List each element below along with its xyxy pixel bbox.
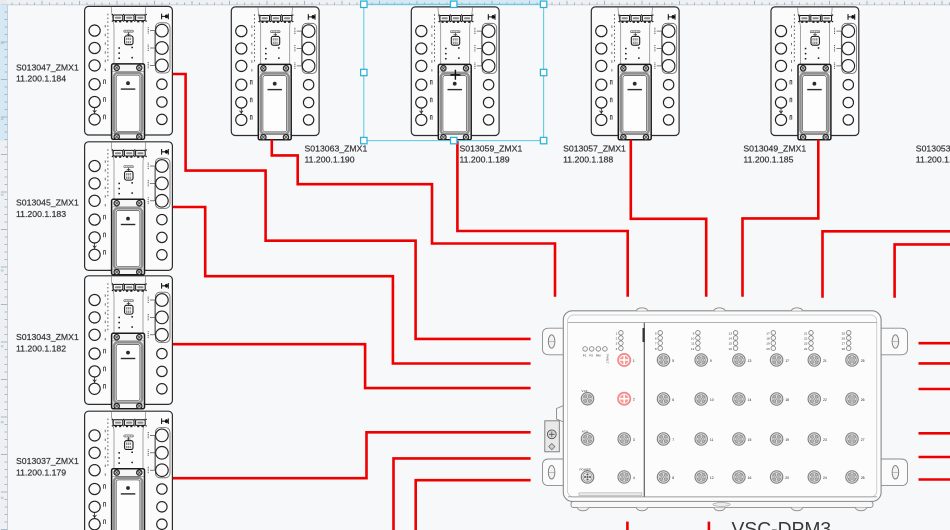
svg-text:18: 18	[766, 336, 770, 340]
svg-text:26: 26	[861, 398, 865, 402]
svg-text:4: 4	[633, 476, 635, 480]
svg-text:2: 2	[633, 398, 635, 402]
svg-text:22: 22	[823, 398, 827, 402]
svg-text:25: 25	[861, 359, 865, 363]
svg-text:FAULT: FAULT	[605, 354, 609, 363]
svg-text:26: 26	[842, 336, 846, 340]
svg-text:16: 16	[748, 476, 752, 480]
svg-text:8: 8	[672, 476, 674, 480]
svg-text:S013047_ZMX1: S013047_ZMX1	[16, 62, 79, 72]
svg-text:P1: P1	[583, 354, 587, 358]
svg-text:18: 18	[785, 398, 789, 402]
svg-text:P2: P2	[589, 354, 593, 358]
svg-text:S013053_ZMX1: S013053_ZMX1	[916, 143, 950, 153]
svg-text:28: 28	[861, 476, 865, 480]
svg-text:17: 17	[785, 359, 789, 363]
svg-text:11: 11	[710, 438, 714, 442]
svg-text:V.24: V.24	[582, 389, 588, 393]
svg-text:8: 8	[655, 347, 657, 351]
svg-text:S013057_ZMX1: S013057_ZMX1	[563, 143, 626, 153]
svg-text:19: 19	[766, 342, 770, 346]
svg-text:20: 20	[766, 347, 770, 351]
svg-text:13: 13	[729, 331, 733, 335]
svg-text:POWER: POWER	[580, 468, 592, 472]
svg-text:RM: RM	[596, 354, 601, 358]
svg-text:11.200.1.189: 11.200.1.189	[460, 155, 510, 165]
svg-text:22: 22	[804, 336, 808, 340]
svg-text:11: 11	[691, 342, 694, 346]
svg-text:10: 10	[710, 398, 714, 402]
svg-text:23: 23	[823, 438, 827, 442]
svg-text:11.200.1.190: 11.200.1.190	[305, 155, 355, 165]
svg-text:11.200.1.185: 11.200.1.185	[743, 155, 793, 165]
svg-text:21: 21	[804, 331, 808, 335]
svg-text:11.200.1.187: 11.200.1.187	[916, 155, 950, 165]
svg-text:S013045_ZMX1: S013045_ZMX1	[16, 198, 79, 208]
svg-text:11.200.1.182: 11.200.1.182	[16, 344, 66, 354]
svg-text:11.200.1.184: 11.200.1.184	[16, 74, 66, 84]
svg-text:S013049_ZMX1: S013049_ZMX1	[743, 143, 806, 153]
svg-text:VSC-DPM3: VSC-DPM3	[732, 519, 832, 530]
svg-text:4: 4	[616, 347, 618, 351]
svg-text:ACA: ACA	[582, 430, 588, 434]
svg-text:14: 14	[729, 336, 733, 340]
svg-text:S013043_ZMX1: S013043_ZMX1	[16, 332, 79, 342]
svg-text:6: 6	[655, 336, 657, 340]
svg-text:1: 1	[633, 359, 635, 363]
svg-text:28: 28	[842, 347, 846, 351]
svg-text:13: 13	[748, 359, 752, 363]
svg-text:24: 24	[804, 347, 808, 351]
svg-text:2: 2	[616, 336, 618, 340]
svg-text:3: 3	[616, 342, 618, 346]
svg-text:5: 5	[672, 359, 674, 363]
svg-text:19: 19	[785, 438, 789, 442]
svg-text:S013037_ZMX1: S013037_ZMX1	[16, 456, 79, 466]
svg-text:24: 24	[823, 476, 827, 480]
svg-text:6: 6	[672, 398, 674, 402]
svg-text:17: 17	[766, 331, 770, 335]
svg-text:S013059_ZMX1: S013059_ZMX1	[460, 143, 523, 153]
svg-text:9: 9	[693, 331, 695, 335]
svg-text:11.200.1.179: 11.200.1.179	[16, 467, 66, 477]
svg-text:27: 27	[842, 342, 846, 346]
svg-text:25: 25	[842, 331, 846, 335]
svg-text:3: 3	[633, 438, 635, 442]
svg-text:15: 15	[748, 438, 752, 442]
svg-text:11.200.1.183: 11.200.1.183	[16, 209, 66, 219]
svg-text:23: 23	[804, 342, 808, 346]
svg-text:21: 21	[823, 359, 827, 363]
svg-text:11.200.1.188: 11.200.1.188	[563, 155, 613, 165]
svg-text:10: 10	[691, 336, 695, 340]
svg-text:7: 7	[655, 342, 657, 346]
svg-text:9: 9	[710, 359, 712, 363]
svg-text:15: 15	[729, 342, 733, 346]
svg-text:1: 1	[616, 331, 618, 335]
svg-text:12: 12	[691, 347, 695, 351]
svg-text:20: 20	[785, 476, 789, 480]
svg-text:7: 7	[672, 438, 674, 442]
svg-text:5: 5	[655, 331, 657, 335]
svg-text:27: 27	[861, 438, 865, 442]
svg-text:S013063_ZMX1: S013063_ZMX1	[305, 143, 368, 153]
svg-text:12: 12	[710, 476, 714, 480]
svg-text:16: 16	[729, 347, 733, 351]
svg-text:14: 14	[748, 398, 752, 402]
